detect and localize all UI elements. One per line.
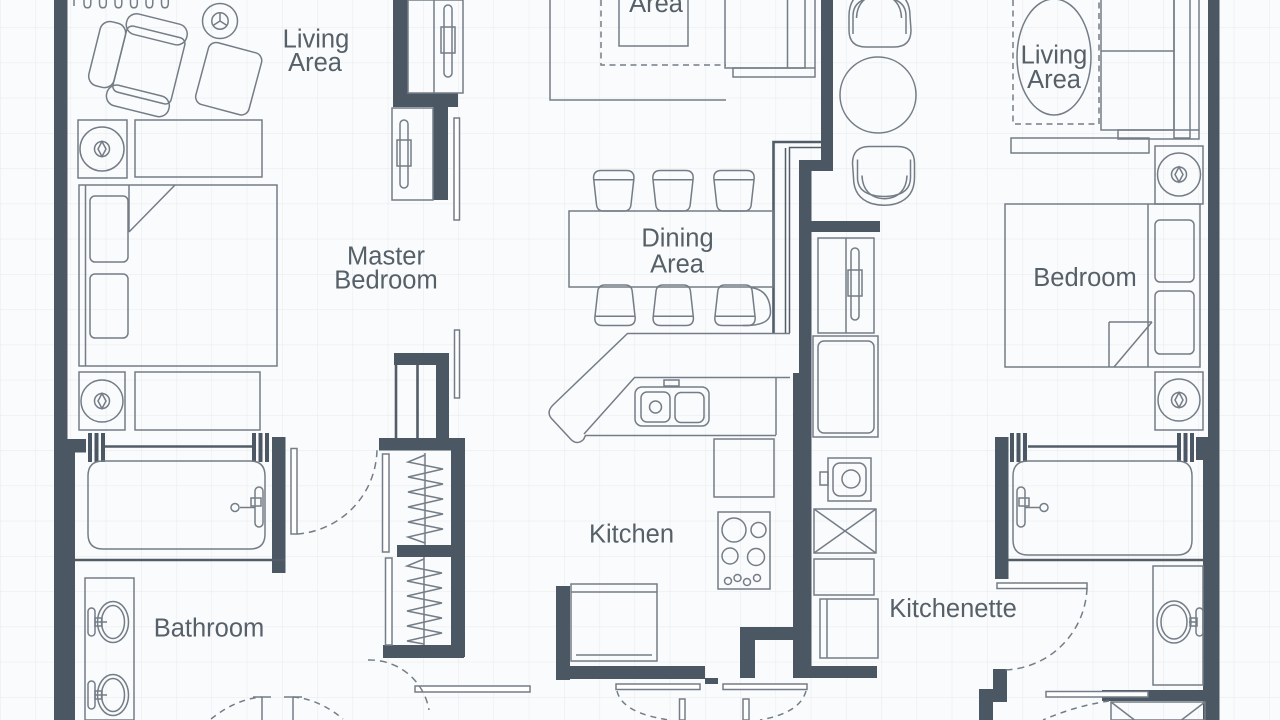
svg-text:Kitchenette: Kitchenette [889,595,1017,623]
svg-text:Bedroom: Bedroom [334,267,437,295]
svg-text:Bedroom: Bedroom [1033,264,1136,292]
svg-text:Area: Area [1027,66,1082,94]
svg-text:Area: Area [650,251,705,279]
svg-text:Area: Area [288,49,343,77]
svg-text:Kitchen: Kitchen [589,521,674,549]
svg-text:Bathroom: Bathroom [154,615,265,643]
svg-text:Area: Area [629,0,684,18]
svg-text:Dining: Dining [641,225,713,253]
